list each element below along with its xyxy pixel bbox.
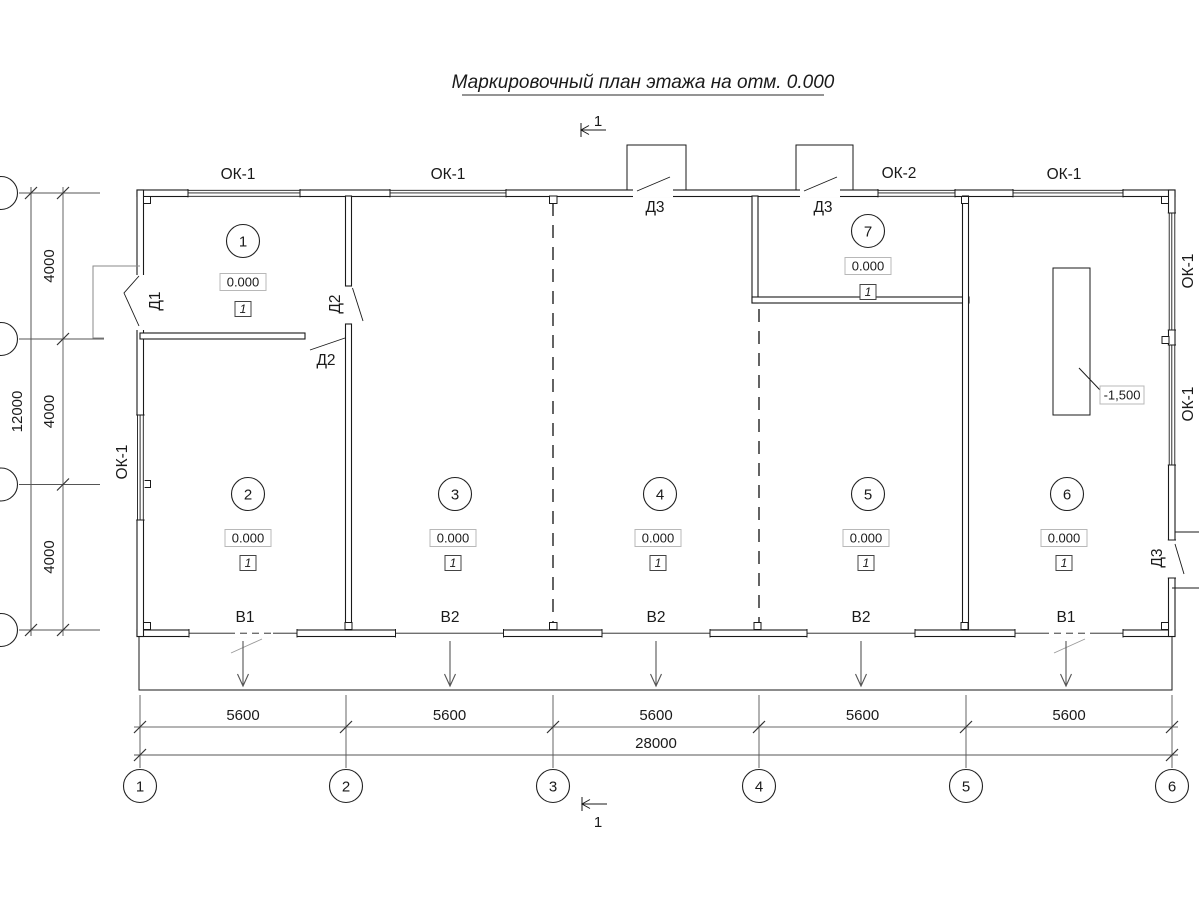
- pit-elevation-value: -1,500: [1104, 388, 1141, 403]
- door-leaf: [310, 338, 345, 350]
- room-number: 2: [244, 487, 252, 504]
- pilaster: [550, 623, 558, 630]
- room-number: 3: [451, 487, 459, 504]
- door-label: Д3: [1149, 548, 1166, 567]
- section-mark-bottom: 1: [582, 797, 607, 831]
- gate-label: В2: [441, 609, 460, 626]
- room-3: 3 0.000 1: [430, 478, 476, 571]
- window-label: ОК-1: [1047, 166, 1082, 183]
- finish-mark: 1: [240, 302, 247, 316]
- elevation-value: 0.000: [1048, 531, 1081, 546]
- axis-number: 6: [1168, 779, 1176, 796]
- doors: Д1 Д2 Д2 Д3 Д3 Д3: [93, 145, 1199, 588]
- room-5: 5 0.000 1: [843, 478, 889, 571]
- axis-number: 3: [549, 779, 557, 796]
- dim-row: 4000: [41, 540, 58, 573]
- gates-bottom-wall: В1 В2 В2 В2 В1: [189, 609, 1123, 686]
- wall-interior-axis2-lower: [346, 324, 352, 630]
- gate-label: В1: [236, 609, 255, 626]
- dim-bay: 5600: [846, 707, 879, 724]
- window-label: ОК-2: [882, 165, 917, 182]
- porch-outline: [796, 145, 853, 190]
- pilaster: [754, 623, 761, 630]
- pilaster: [144, 623, 151, 630]
- drawing-sheet: Маркировочный план этажа на отм. 0.000 1…: [0, 0, 1200, 900]
- door-label: Д1: [147, 291, 164, 310]
- door-label: Д3: [645, 199, 664, 216]
- dimensions-bottom: 5600 5600 5600 5600 5600 28000 1 2 3 4 5…: [124, 695, 1189, 803]
- room-6: 6 0.000 1: [1041, 478, 1087, 571]
- pit-outline: [1053, 268, 1090, 415]
- finish-mark: 1: [245, 556, 252, 570]
- wall-interior-axis2-upper: [346, 196, 352, 286]
- exit-arrow-icon: [445, 641, 456, 686]
- room-number: 1: [239, 234, 247, 251]
- room-4: 4 0.000 1: [635, 478, 681, 571]
- window-label: ОК-1: [221, 166, 256, 183]
- axis-circle-clipped: [0, 468, 18, 501]
- wall-room1-bottom: [140, 333, 305, 339]
- elevation-value: 0.000: [232, 531, 265, 546]
- gate-label: В1: [1057, 609, 1076, 626]
- dim-total: 28000: [635, 735, 677, 752]
- gate-label: В2: [647, 609, 666, 626]
- axis-number: 5: [962, 779, 970, 796]
- title-text: Маркировочный план этажа на отм. 0.000: [452, 72, 835, 93]
- gate-leaf: [1054, 639, 1085, 653]
- porch-outline: [627, 145, 686, 190]
- axis-number: 4: [755, 779, 763, 796]
- gate-label: В2: [852, 609, 871, 626]
- pilaster: [345, 623, 352, 630]
- pilaster: [1162, 623, 1169, 630]
- wall-interior-axis5: [963, 196, 969, 630]
- elevation-value: 0.000: [852, 259, 885, 274]
- elevation-value: 0.000: [437, 531, 470, 546]
- elevation-value: 0.000: [227, 275, 260, 290]
- wall-left: [137, 190, 144, 637]
- room-2: 2 0.000 1: [225, 478, 271, 571]
- finish-mark: 1: [1061, 556, 1068, 570]
- axis-circle-clipped: [0, 323, 18, 356]
- axis-number: 1: [136, 779, 144, 796]
- window-label: ОК-1: [1180, 387, 1197, 422]
- pit: -1,500: [1053, 268, 1144, 415]
- exit-arrow-icon: [1061, 641, 1072, 686]
- axis-circle-clipped: [0, 177, 18, 210]
- elevation-value: 0.000: [642, 531, 675, 546]
- window-label: ОК-1: [1180, 254, 1197, 289]
- finish-mark: 1: [863, 556, 870, 570]
- finish-mark: 1: [655, 556, 662, 570]
- dim-bay: 5600: [226, 707, 259, 724]
- door-label: Д2: [316, 352, 335, 369]
- room-number: 7: [864, 224, 872, 241]
- windows-side-walls: ОК-1 ОК-1 ОК-1: [114, 213, 1197, 520]
- room-1: 1 0.000 1: [220, 225, 266, 317]
- axis-number: 2: [342, 779, 350, 796]
- axis-circle-clipped: [0, 614, 18, 647]
- room-number: 5: [864, 487, 872, 504]
- pilaster: [962, 197, 969, 204]
- floor-plan-svg: Маркировочный план этажа на отм. 0.000 1…: [0, 0, 1200, 900]
- window-label: ОК-1: [431, 166, 466, 183]
- pilaster: [1162, 337, 1169, 344]
- pilaster: [550, 196, 558, 204]
- dimensions-left: 4000 4000 4000 12000: [0, 177, 104, 647]
- dim-bay: 5600: [639, 707, 672, 724]
- exit-arrow-icon: [651, 641, 662, 686]
- room-number: 6: [1063, 487, 1071, 504]
- dim-row: 4000: [41, 249, 58, 282]
- wall-room7-left: [752, 196, 758, 303]
- section-mark-top: 1: [581, 113, 606, 137]
- dim-bay: 5600: [433, 707, 466, 724]
- exit-arrow-icon: [856, 641, 867, 686]
- elevation-value: 0.000: [850, 531, 883, 546]
- pilaster: [1162, 197, 1169, 204]
- section-number: 1: [594, 113, 602, 130]
- pilaster: [961, 623, 968, 630]
- window-label: ОК-1: [114, 445, 131, 480]
- finish-mark: 1: [450, 556, 457, 570]
- dim-bay: 5600: [1052, 707, 1085, 724]
- exit-arrow-icon: [238, 641, 249, 686]
- door-leaf: [353, 288, 364, 321]
- door-label: Д3: [813, 199, 832, 216]
- door-leaf: [1175, 544, 1184, 574]
- door-label: Д2: [327, 294, 344, 313]
- room-7: 7 0.000 1: [845, 215, 891, 300]
- drawing-title: Маркировочный план этажа на отм. 0.000: [452, 72, 835, 95]
- dim-total: 12000: [9, 391, 26, 433]
- finish-mark: 1: [865, 285, 872, 299]
- gate-leaf: [231, 639, 262, 653]
- room-number: 4: [656, 487, 664, 504]
- pilaster: [144, 197, 151, 204]
- porch-left-outline: [93, 266, 140, 338]
- section-number: 1: [594, 814, 602, 831]
- dim-row: 4000: [41, 395, 58, 428]
